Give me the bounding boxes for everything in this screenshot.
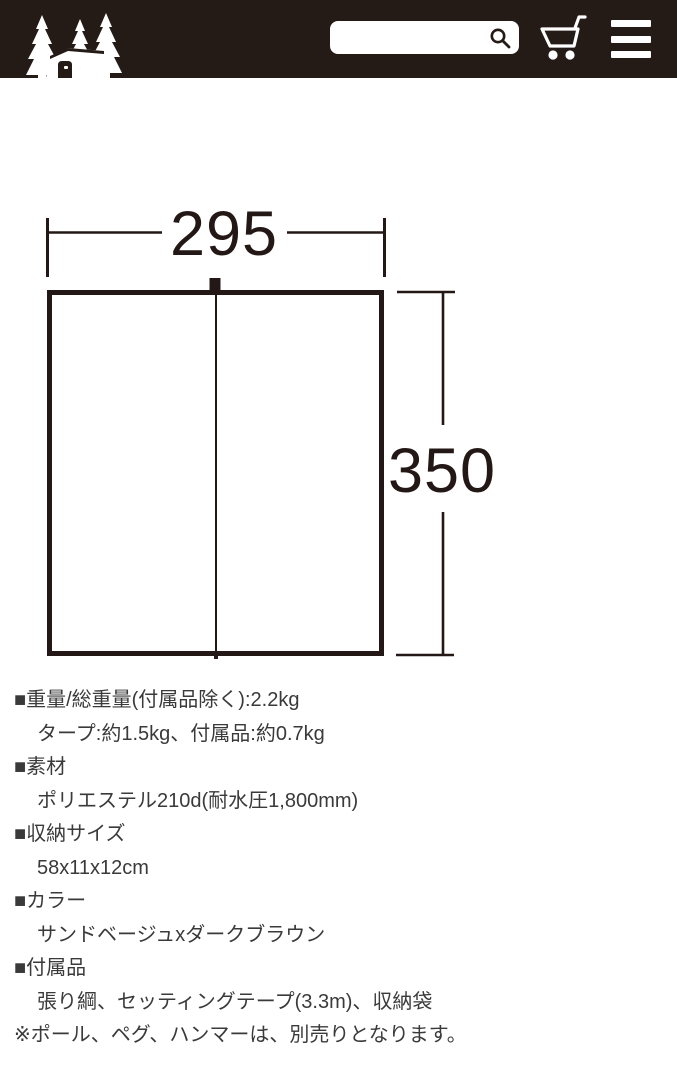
cart-button[interactable] <box>537 12 591 66</box>
shopping-cart-icon <box>537 12 591 66</box>
hamburger-icon <box>611 20 651 27</box>
product-spec-page: 295 350 ■重量/総重量(付属品除く):2.2kg タープ:約1.5kg、… <box>0 0 677 1080</box>
spec-line-accessory-detail: 張り綱、セッティングテープ(3.3m)、収納袋 <box>0 986 677 1020</box>
spec-line-weight-heading: ■重量/総重量(付属品除く):2.2kg <box>0 684 677 718</box>
dimension-diagram: 295 350 <box>0 190 677 670</box>
spec-line-storage-detail: 58x11x12cm <box>0 852 677 886</box>
spec-line-note: ※ポール、ペグ、ハンマーは、別売りとなります。 <box>0 1019 677 1053</box>
spec-line-accessory-heading: ■付属品 <box>0 952 677 986</box>
search-bar <box>330 21 519 54</box>
hamburger-icon <box>611 51 651 58</box>
spec-line-material-heading: ■素材 <box>0 751 677 785</box>
tab-marker <box>210 278 221 293</box>
spec-list: ■重量/総重量(付属品除く):2.2kg タープ:約1.5kg、付属品:約0.7… <box>0 684 677 1053</box>
spec-line-color-heading: ■カラー <box>0 885 677 919</box>
spec-line-material-detail: ポリエステル210d(耐水圧1,800mm) <box>0 785 677 819</box>
spec-line-weight-detail: タープ:約1.5kg、付属品:約0.7kg <box>0 718 677 752</box>
height-dimension-label: 350 <box>388 436 496 506</box>
site-header <box>0 0 677 78</box>
search-input[interactable] <box>330 21 519 54</box>
tent-and-trees-icon <box>24 7 124 78</box>
spec-line-color-detail: サンドベージュxダークブラウン <box>0 919 677 953</box>
site-logo[interactable] <box>24 7 124 78</box>
seam-nub <box>214 653 218 659</box>
spec-line-storage-heading: ■収納サイズ <box>0 818 677 852</box>
menu-button[interactable] <box>611 20 651 58</box>
hamburger-icon <box>611 36 651 43</box>
width-dimension-label: 295 <box>170 199 278 269</box>
